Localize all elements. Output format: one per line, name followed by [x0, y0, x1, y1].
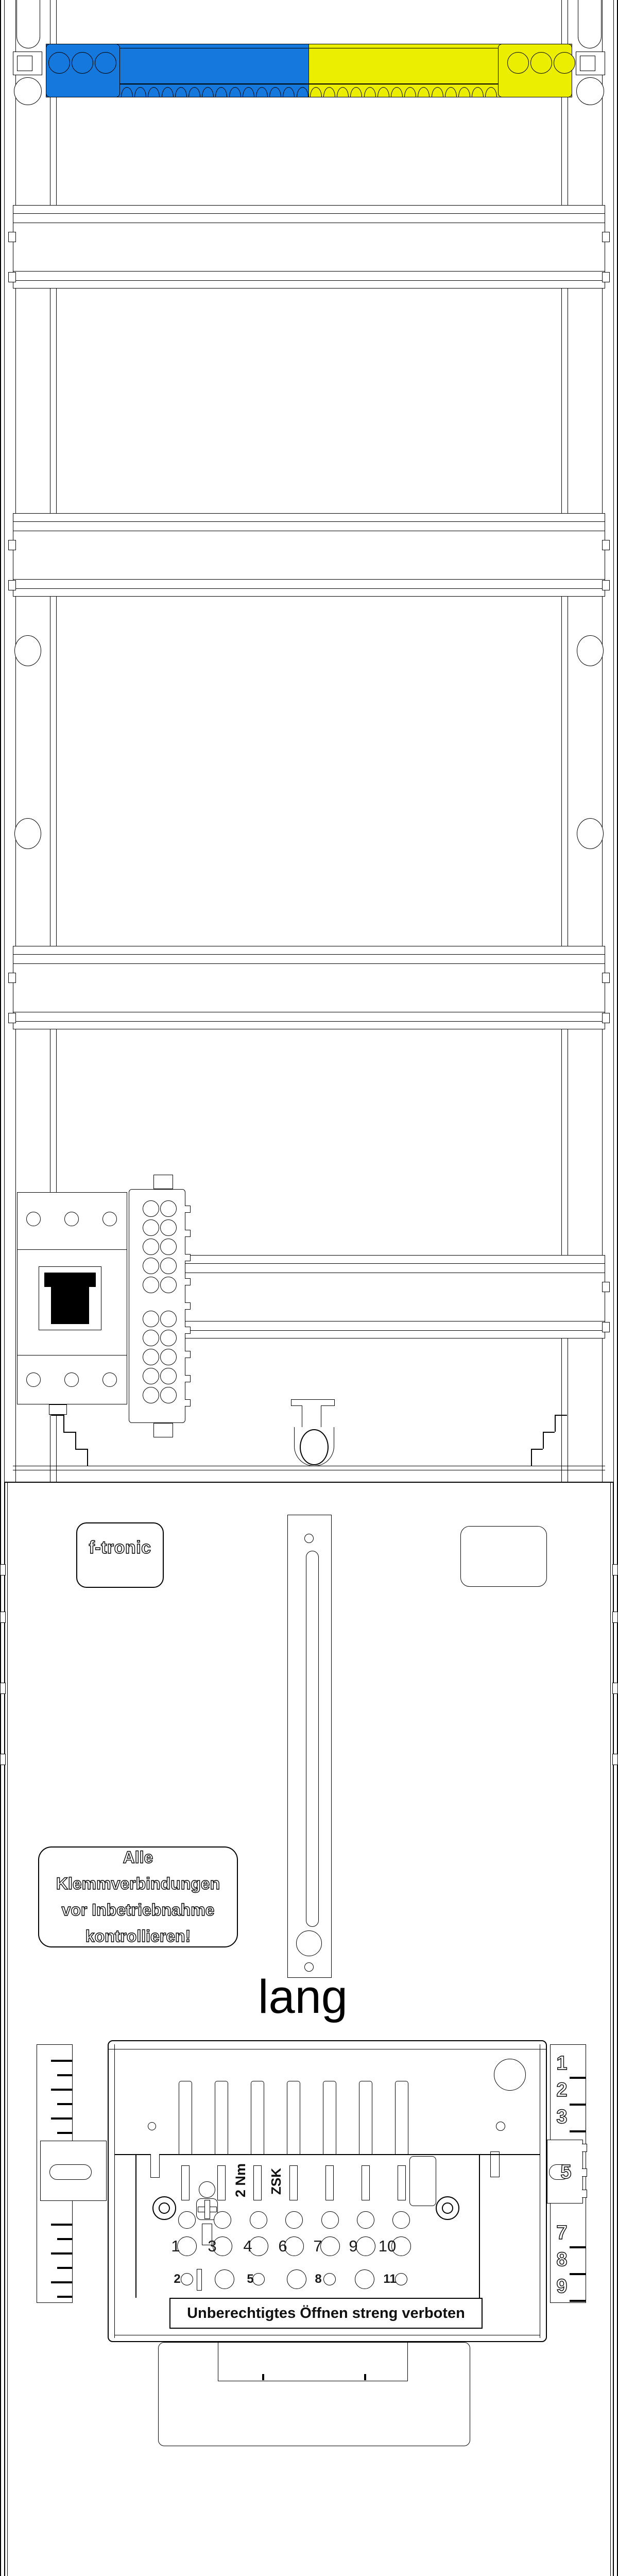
terminal-number: 5: [242, 2272, 259, 2286]
block-prong: [179, 2081, 192, 2154]
slot-plate-line: [287, 1515, 288, 1977]
frame-u-cutout: [16, 0, 40, 48]
mount-slot-left: [49, 2164, 92, 2180]
fuse-plate-hole: [102, 1212, 117, 1226]
clamp-tooth: [185, 1278, 191, 1285]
scale-tick: [570, 2246, 586, 2248]
rail-ear: [8, 540, 16, 550]
scale-tick: [51, 2224, 73, 2226]
divider-line: [13, 1470, 605, 1470]
frame-edge-left: [0, 0, 1, 2576]
cross-rail: [13, 513, 605, 597]
clamp-hole: [160, 1349, 177, 1365]
block-prong: [287, 2081, 300, 2154]
panel-edge-clip: [0, 1683, 6, 1694]
slot-hole: [296, 1930, 322, 1956]
clamp-hole: [143, 1368, 159, 1384]
warning-line-2: vor Inbetriebnahme: [39, 1897, 237, 1923]
fuse-plate-line: [17, 1355, 127, 1355]
seal-cross-v: [204, 2200, 210, 2219]
scale-number: 8: [552, 2249, 572, 2270]
panel-edge-clip: [0, 1564, 6, 1575]
scale-tick: [51, 2060, 73, 2062]
step-line: [87, 1449, 88, 1466]
warning-line-3: kontrollieren!: [39, 1923, 237, 1950]
terminal-slot: [398, 2165, 406, 2200]
strip-end-circle: [554, 52, 575, 74]
terminal-number: 9: [344, 2236, 363, 2256]
clamp-hole: [143, 1258, 159, 1274]
rail-ear: [8, 272, 16, 282]
frame-hole: [576, 77, 604, 105]
clamp-hole: [160, 1330, 177, 1346]
face-notch: [150, 2154, 160, 2178]
strip-end-circle: [530, 52, 552, 74]
scale-tick: [57, 2132, 73, 2134]
frame-hole: [14, 635, 41, 666]
clamp-hole: [160, 1277, 177, 1293]
knockout: [460, 1526, 547, 1587]
terminal-hole: [215, 2269, 234, 2289]
face-line: [135, 2154, 136, 2298]
step-line: [531, 1449, 532, 1466]
rail-ear: [8, 973, 16, 983]
clamp-tab: [153, 1175, 173, 1189]
rail-ear: [8, 1013, 16, 1023]
fuse-plate-hole: [26, 1372, 41, 1387]
panel-inner-line: [610, 1482, 611, 2576]
clamp-hole: [160, 1368, 177, 1384]
brand-logo-text: f-tronic: [89, 1538, 151, 1557]
strip-line: [46, 48, 572, 48]
terminal-number: 2: [169, 2272, 185, 2286]
clamp-hole: [143, 1387, 159, 1403]
cross-rail: [13, 205, 605, 289]
casing-hole: [148, 2122, 156, 2130]
fuse-plug-body: [51, 1287, 89, 1324]
casing-line: [540, 2044, 540, 2338]
panel-edge-clip: [612, 1612, 618, 1623]
panel-edge-clip: [612, 1683, 618, 1694]
casing-line: [108, 2049, 547, 2049]
panel-edge-clip: [0, 1754, 6, 1765]
block-prong: [359, 2081, 372, 2154]
rail-ear: [602, 272, 610, 282]
cross-rail-line: [13, 1021, 605, 1022]
clamp-tooth: [185, 1254, 191, 1261]
clamp-tooth: [185, 1351, 191, 1358]
terminal-hole: [357, 2211, 374, 2229]
rail-ear: [602, 540, 610, 550]
scale-tick: [570, 2130, 586, 2132]
scale-tick: [57, 2296, 73, 2298]
hanger-stem: [302, 1405, 321, 1428]
terminal-hole: [214, 2211, 231, 2229]
frame-u-cutout: [578, 0, 602, 48]
cross-rail-line: [175, 1330, 605, 1331]
fuse-plate-hole: [64, 1372, 79, 1387]
block-base-inner: [218, 2342, 408, 2381]
frame-hole: [14, 77, 42, 105]
panel-inner-line: [7, 1482, 8, 2576]
strip-end-circle: [95, 52, 116, 74]
base-mark: [262, 2374, 264, 2380]
clamp-hole: [143, 1219, 159, 1236]
casing-line: [114, 2044, 115, 2338]
terminal-slot: [325, 2165, 334, 2200]
casing-slot: [490, 2151, 500, 2177]
terminal-number: 6: [273, 2236, 292, 2256]
scale-tick: [57, 2267, 73, 2269]
scale-tick: [570, 2104, 586, 2106]
clamp-hole: [143, 1277, 159, 1293]
terminal-slot: [181, 2165, 190, 2200]
scale-tick: [51, 2281, 73, 2283]
cross-rail-line: [13, 954, 605, 955]
strip-bracket-inner: [580, 56, 595, 71]
seal-strip: Unberechtigtes Öffnen streng verboten: [169, 2298, 483, 2329]
divider-line: [13, 1466, 605, 1466]
clamp-hole: [143, 1239, 159, 1255]
scale-tick: [570, 2273, 586, 2275]
cross-rail-line: [13, 963, 605, 964]
step-line: [75, 1432, 76, 1449]
scale-tick: [51, 2117, 73, 2120]
panel-edge-clip: [612, 1754, 618, 1765]
row-divider: [197, 2269, 202, 2291]
scale-tick: [570, 2300, 586, 2302]
cross-rail-line: [13, 588, 605, 589]
screw-inner: [159, 2202, 170, 2214]
bracket-tooth: [582, 2168, 587, 2177]
clamp-hole: [160, 1258, 177, 1274]
clamp-hole: [160, 1200, 177, 1217]
terminal-slot: [362, 2165, 370, 2200]
fuse-plate-line: [17, 1249, 127, 1250]
fuse-plug-top: [44, 1273, 96, 1287]
clamp-tooth: [185, 1399, 191, 1406]
face-line: [114, 2154, 540, 2155]
terminal-number: 10: [378, 2236, 397, 2256]
scale-number: 9: [552, 2276, 572, 2297]
strip-end-circle: [48, 52, 70, 74]
terminal-hole: [355, 2269, 374, 2289]
block-prong: [395, 2081, 408, 2154]
terminal-slot: [289, 2165, 298, 2200]
terminal-hole: [285, 2211, 303, 2229]
cross-rail-line: [175, 1321, 605, 1321]
clamp-tooth: [185, 1327, 191, 1334]
casing-hole: [496, 2122, 505, 2131]
plate-tab: [49, 1404, 67, 1415]
terminal-hole: [321, 2211, 339, 2229]
panel-edge-clip: [612, 1564, 618, 1575]
step-line: [51, 1415, 63, 1416]
clamp-tooth: [185, 1206, 191, 1213]
step-line: [75, 1449, 87, 1450]
clamp-hole: [160, 1239, 177, 1255]
terminal-number: 11: [382, 2272, 398, 2286]
terminal-slot: [217, 2165, 226, 2200]
cross-rail: [175, 1255, 605, 1338]
clamp-tooth: [185, 1375, 191, 1382]
scale-number: 1: [552, 2053, 572, 2074]
rail-ear: [602, 1013, 610, 1023]
scale-tick: [51, 2252, 73, 2255]
warning-line-1: Alle Klemmverbindungen: [39, 1844, 237, 1897]
scale-number: 7: [552, 2222, 572, 2244]
rail-ear: [8, 232, 16, 242]
slot-hole: [304, 1534, 314, 1543]
step-line: [555, 1415, 556, 1432]
strip-end-circle: [507, 52, 529, 74]
frame-hole: [577, 818, 604, 849]
terminal-slot: [253, 2165, 262, 2200]
rail-ear: [602, 232, 610, 242]
scale-tick: [570, 2077, 586, 2079]
step-line: [63, 1415, 64, 1432]
cross-rail-line: [13, 223, 605, 223]
clamp-hole: [160, 1219, 177, 1236]
face-line: [479, 2154, 480, 2298]
clamp-hole: [160, 1387, 177, 1403]
cross-rail-line: [13, 213, 605, 214]
scale-number: 5: [556, 2161, 576, 2183]
slot-plate-line: [331, 1515, 332, 1977]
block-prong: [215, 2081, 228, 2154]
terminal-number: 1: [166, 2236, 185, 2256]
fuse-plate-hole: [102, 1372, 117, 1387]
frame-hole: [14, 818, 41, 849]
step-line: [543, 1432, 544, 1449]
cross-rail-line: [13, 271, 605, 272]
terminal-number: 3: [203, 2236, 221, 2256]
scale-tick: [57, 2074, 73, 2076]
cross-rail-line: [13, 521, 605, 522]
hanger-oval: [300, 1429, 329, 1465]
casing-line: [114, 2335, 540, 2335]
terminal-hole: [392, 2211, 410, 2229]
seal-circle: [199, 2181, 215, 2198]
cross-rail-line: [13, 579, 605, 580]
clamp-tab: [153, 1423, 173, 1437]
brand-badge: f-tronic: [76, 1522, 164, 1588]
terminal-hole: [250, 2211, 267, 2229]
type-label: ZSK: [268, 2156, 284, 2207]
cross-rail-line: [13, 280, 605, 281]
center-slot: [306, 1551, 319, 1927]
clamp-tooth: [185, 1230, 191, 1237]
rail-ear: [602, 1282, 610, 1292]
cross-rail: [13, 946, 605, 1029]
clamp-hole: [143, 1349, 159, 1365]
block-prong: [251, 2081, 264, 2154]
terminal-hole: [178, 2211, 196, 2229]
cross-rail-line: [175, 1263, 605, 1264]
warning-label: Alle Klemmverbindungen vor Inbetriebnahm…: [38, 1846, 238, 1947]
panel-edge-clip: [0, 1612, 6, 1623]
step-line: [543, 1432, 555, 1433]
clamp-hole: [143, 1311, 159, 1327]
screw-inner: [442, 2202, 453, 2214]
terminal-hole: [287, 2269, 306, 2289]
scale-tick: [51, 2089, 73, 2091]
rail-ear: [602, 580, 610, 590]
meter-cabinet-drawing: f-tronic Alle Klemmverbindungen vor Inbe…: [0, 0, 618, 2576]
seal-text: Unberechtigtes Öffnen streng verboten: [187, 2305, 465, 2322]
cross-rail-line: [13, 1012, 605, 1012]
base-mark: [364, 2374, 366, 2380]
step-line: [531, 1449, 543, 1450]
strip-bracket-inner: [17, 56, 32, 71]
bracket-tooth: [582, 2144, 587, 2152]
cross-rail-line: [175, 1273, 605, 1273]
length-label: lang: [241, 1970, 365, 2024]
torque-label: 2 Nm: [233, 2155, 248, 2206]
scale-tick: [57, 2103, 73, 2105]
clamp-tooth: [185, 1302, 191, 1310]
terminal-number: 4: [238, 2236, 257, 2256]
rail-ear: [8, 580, 16, 590]
clamp-hole: [143, 1200, 159, 1217]
clamp-hole: [143, 1330, 159, 1346]
rail-ear: [602, 973, 610, 983]
scale-tick: [57, 2238, 73, 2240]
cross-rail-line: [13, 531, 605, 531]
slot-plate-line: [287, 1515, 332, 1515]
scale-number: 2: [552, 2079, 572, 2101]
terminal-number: 8: [310, 2272, 327, 2286]
bracket-tooth: [582, 2190, 587, 2198]
clamp-hole: [160, 1311, 177, 1327]
scale-number: 3: [552, 2106, 572, 2128]
strip-end-circle: [72, 52, 93, 74]
rail-ear: [602, 1322, 610, 1332]
terminal-number: 7: [308, 2236, 327, 2256]
step-line: [63, 1432, 75, 1433]
step-line: [555, 1415, 567, 1416]
casing-hole: [494, 2059, 526, 2091]
blank-label: [409, 2156, 436, 2206]
fuse-plate-hole: [64, 1212, 79, 1226]
fuse-plate-hole: [26, 1212, 41, 1226]
block-prong: [323, 2081, 336, 2154]
frame-hole: [577, 635, 604, 666]
